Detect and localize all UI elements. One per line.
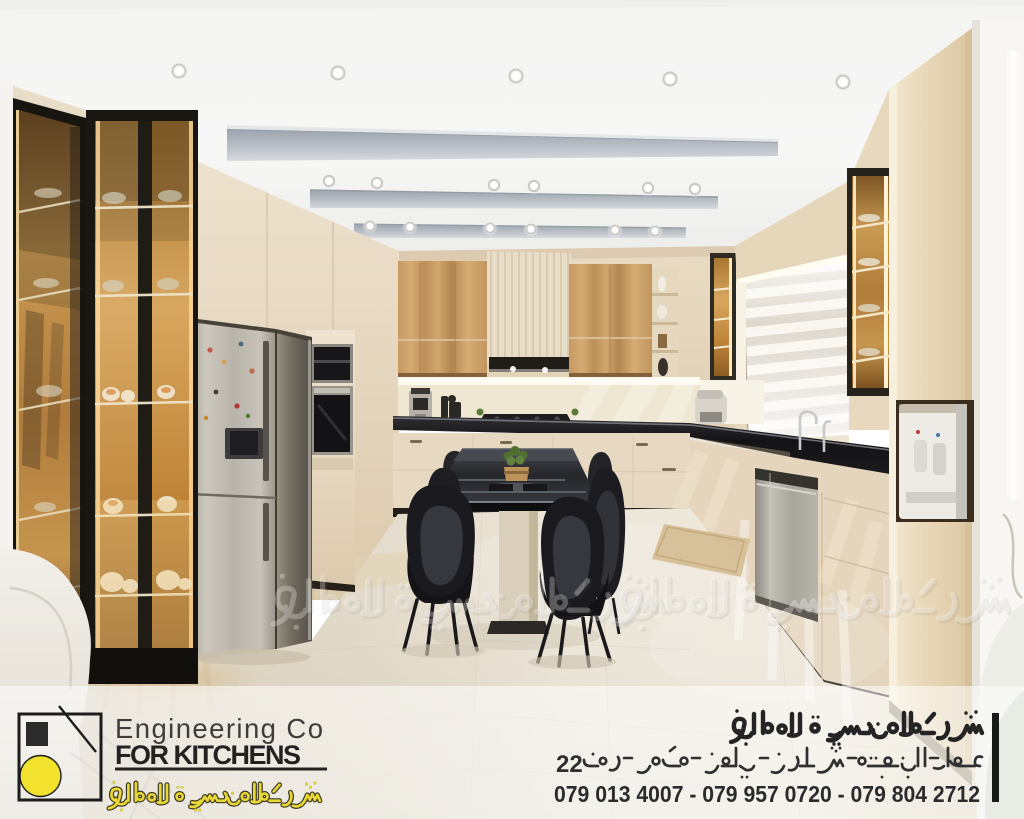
svg-text:22: 22 bbox=[556, 751, 583, 778]
svg-text:079 013 4007 - 079 957 0720 -: 079 013 4007 - 079 957 0720 - 079 804 27… bbox=[554, 781, 980, 807]
svg-text:FOR KITCHENS: FOR KITCHENS bbox=[115, 740, 301, 770]
